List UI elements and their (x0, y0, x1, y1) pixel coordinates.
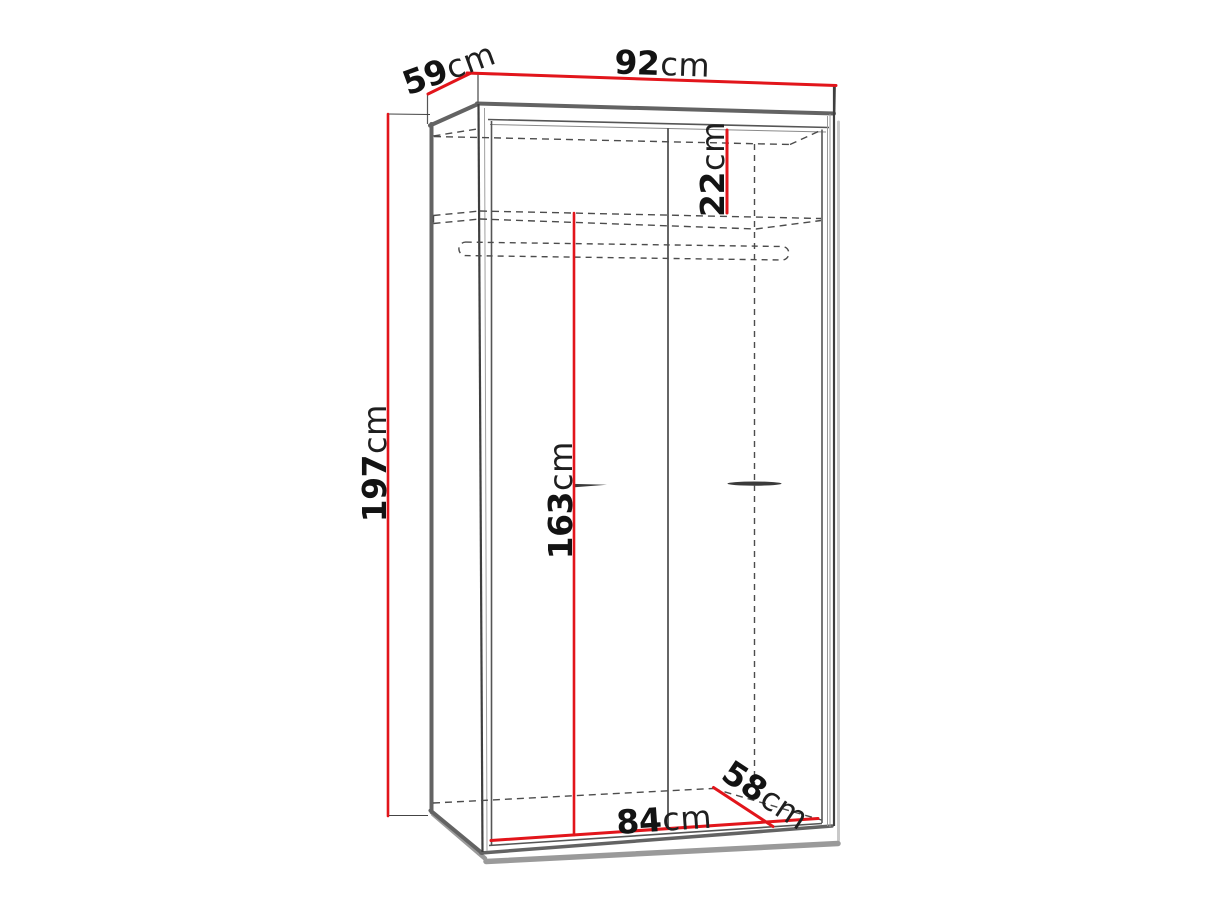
dim-163-unit: cm (542, 441, 580, 491)
dim-92-unit: cm (660, 45, 711, 85)
dim-22-value: 22 (693, 172, 732, 217)
dimension-label-22cm: 22 cm (693, 121, 732, 217)
dim-197-value: 197 (355, 455, 394, 522)
inner-frame (488, 116, 829, 846)
door-handles (573, 482, 782, 488)
dim-92-value: 92 (614, 43, 660, 83)
diagram-canvas: 92 cm 59 cm 197 cm 22 cm 163 cm 84 cm 58… (0, 0, 1219, 914)
dimension-label-84cm: 84 cm (615, 797, 713, 842)
dim-22-unit: cm (694, 121, 732, 171)
dimension-label-197cm: 197 cm (355, 404, 394, 522)
wardrobe-edges (388, 74, 836, 852)
dimension-label-163cm: 163 cm (541, 441, 580, 559)
dim-84-value: 84 (615, 800, 662, 842)
wardrobe-dimension-diagram: 92 cm 59 cm 197 cm 22 cm 163 cm 84 cm 58… (0, 0, 1219, 914)
dimension-label-92cm: 92 cm (614, 43, 711, 85)
dimension-lines (388, 73, 836, 841)
dim-163-value: 163 (541, 492, 580, 559)
hanging-rod-hidden (459, 242, 789, 260)
dim-197-unit: cm (356, 404, 394, 454)
back-top-edge (434, 137, 790, 145)
dim-84-unit: cm (661, 798, 713, 839)
dimension-label-59cm: 59 cm (397, 34, 500, 103)
wardrobe-outer-frame (430, 104, 834, 854)
